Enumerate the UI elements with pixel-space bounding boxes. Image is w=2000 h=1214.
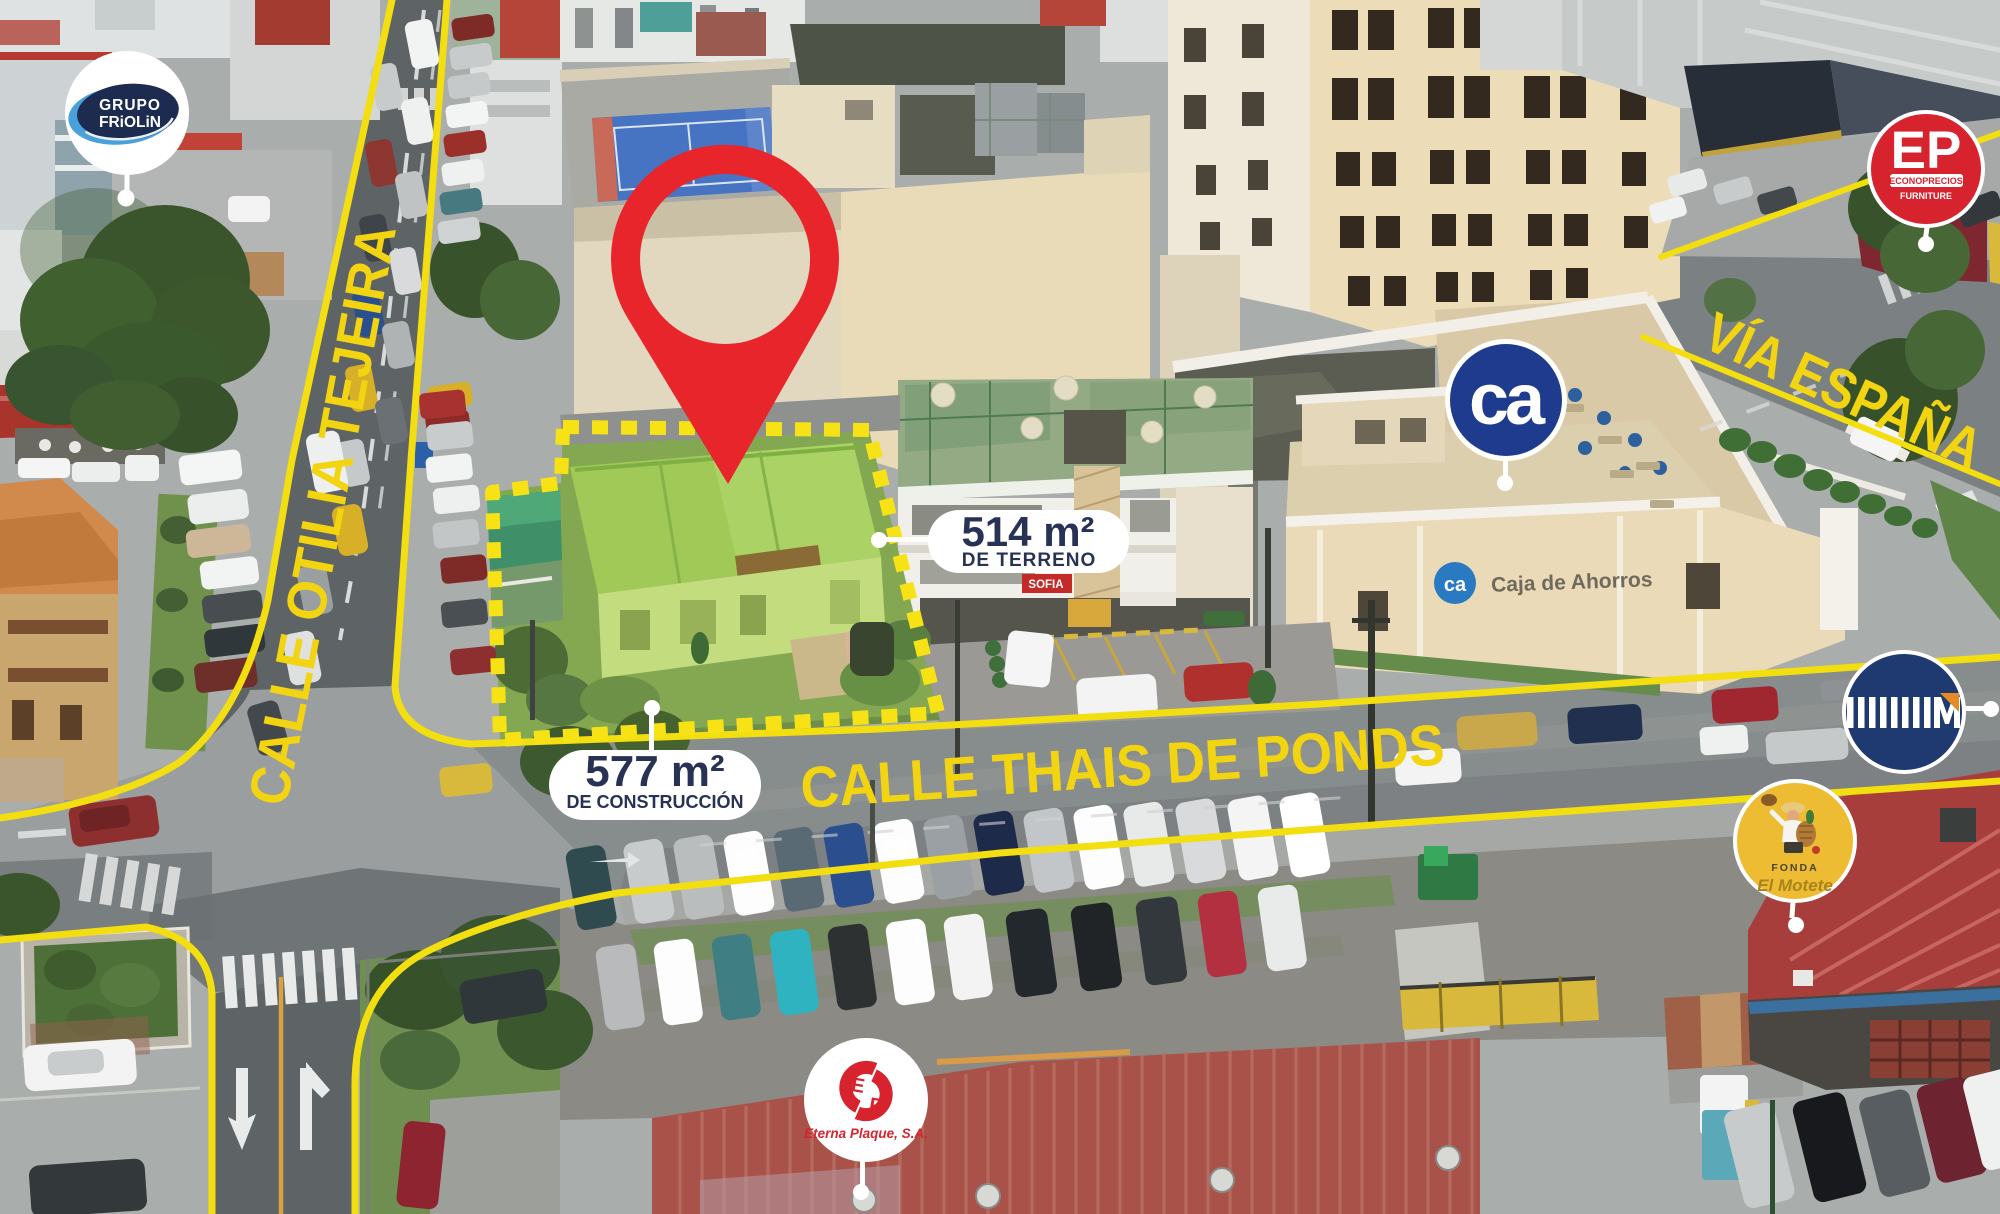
svg-text:ca: ca — [1469, 360, 1546, 440]
svg-text:FRiOLiN: FRiOLiN — [99, 114, 161, 131]
svg-text:SOFIA: SOFIA — [1028, 579, 1063, 591]
svg-text:FURNITURE: FURNITURE — [1900, 191, 1952, 201]
svg-text:577 m²: 577 m² — [585, 747, 724, 796]
svg-text:GRUPO: GRUPO — [99, 97, 161, 114]
svg-text:DE CONSTRUCCIÓN: DE CONSTRUCCIÓN — [566, 791, 743, 812]
svg-text:EP: EP — [1891, 121, 1962, 180]
svg-text:ca: ca — [1444, 574, 1467, 596]
svg-text:DE TERRENO: DE TERRENO — [962, 550, 1097, 571]
svg-text:El Motete: El Motete — [1757, 876, 1833, 895]
svg-text:Eterna Plaque, S.A.: Eterna Plaque, S.A. — [804, 1126, 928, 1141]
svg-text:514 m²: 514 m² — [961, 508, 1094, 555]
svg-text:ECONOPRECIOS: ECONOPRECIOS — [1889, 176, 1963, 186]
svg-text:FONDA: FONDA — [1771, 862, 1818, 874]
